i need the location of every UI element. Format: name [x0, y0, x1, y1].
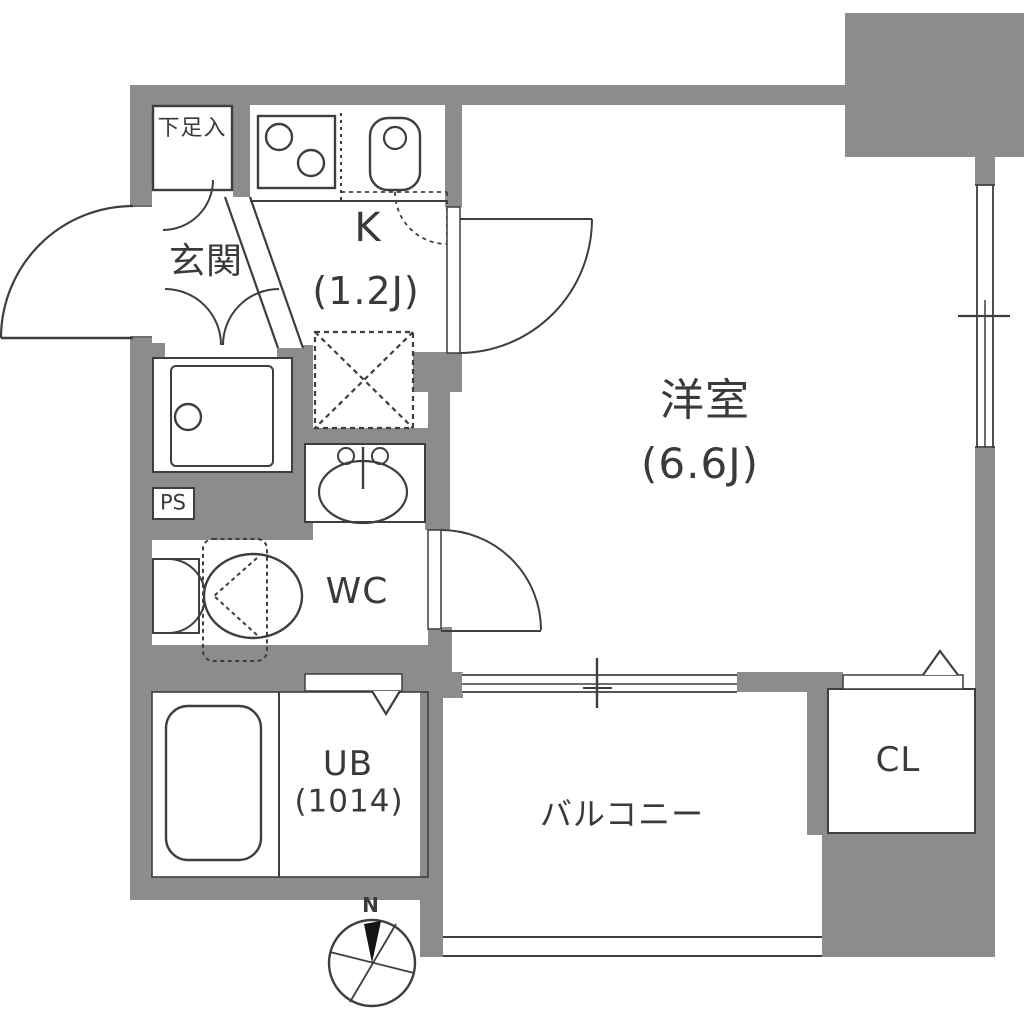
- kitchen-door-swing-dashed: [395, 192, 447, 244]
- wc-door: [428, 530, 541, 631]
- wall-kitchen-right: [445, 105, 462, 207]
- label-kitchen: K: [354, 208, 381, 248]
- label-kitchen-size: (1.2J): [312, 272, 419, 310]
- toilet: [153, 539, 302, 661]
- ub-doorway: [305, 674, 402, 691]
- unit-bath: [152, 674, 428, 877]
- wall-closet-left: [807, 677, 828, 835]
- wall-niche-right: [425, 443, 450, 530]
- bathtub: [166, 706, 261, 860]
- closet-folding-door-icon: [923, 651, 958, 675]
- label-balcony: バルコニー: [540, 798, 704, 830]
- floorplan-drawing: [0, 0, 1024, 1024]
- western-room-door: [447, 207, 592, 353]
- toilet-tank: [153, 559, 199, 633]
- closet-doorway: [843, 675, 963, 689]
- wall-right-mid: [975, 448, 995, 679]
- label-closet: CL: [876, 743, 921, 777]
- wall-jog: [428, 392, 450, 446]
- wall-shoe-right: [233, 105, 250, 197]
- label-shoe-cabinet: 下足入: [157, 118, 226, 140]
- compass: [329, 920, 415, 1006]
- wall-bottom: [130, 877, 443, 900]
- label-western-room-size: (6.6J): [641, 443, 759, 485]
- wash-basin: [305, 444, 425, 523]
- right-window: [958, 185, 1010, 448]
- label-unit-bath: UB: [323, 747, 373, 781]
- kitchen-sink: [370, 118, 420, 190]
- label-pipe-space: PS: [160, 493, 186, 514]
- wall-top: [130, 85, 845, 105]
- wall-right-stub: [975, 157, 995, 187]
- floor-plan: 下足入 玄関 K (1.2J) 洋室 (6.6J) WC UB (1014) C…: [0, 0, 1024, 1024]
- label-entrance: 玄関: [169, 244, 243, 280]
- label-western-room: 洋室: [660, 379, 750, 423]
- wall-block-bottom-right: [822, 833, 995, 957]
- wall-right-low: [975, 677, 995, 837]
- balcony-railing: [443, 937, 822, 956]
- balcony-sliding-window: [462, 658, 737, 708]
- ub-folding-door-icon: [372, 691, 400, 714]
- entrance-door: [1, 205, 152, 338]
- wall-pillar-top-right: [845, 13, 1024, 157]
- refrigerator-space: [315, 332, 413, 428]
- label-unit-bath-size: (1014): [294, 787, 403, 818]
- wall-balcony-left: [420, 694, 443, 957]
- kitchen-counter: [250, 113, 447, 244]
- washing-machine-pan: [153, 358, 292, 472]
- label-wc: WC: [326, 574, 389, 610]
- label-compass-north: N: [362, 895, 380, 915]
- toilet-bowl: [204, 554, 302, 638]
- wall-below-kitchen-door: [413, 352, 462, 392]
- wall-wc-ub-band: [130, 645, 452, 692]
